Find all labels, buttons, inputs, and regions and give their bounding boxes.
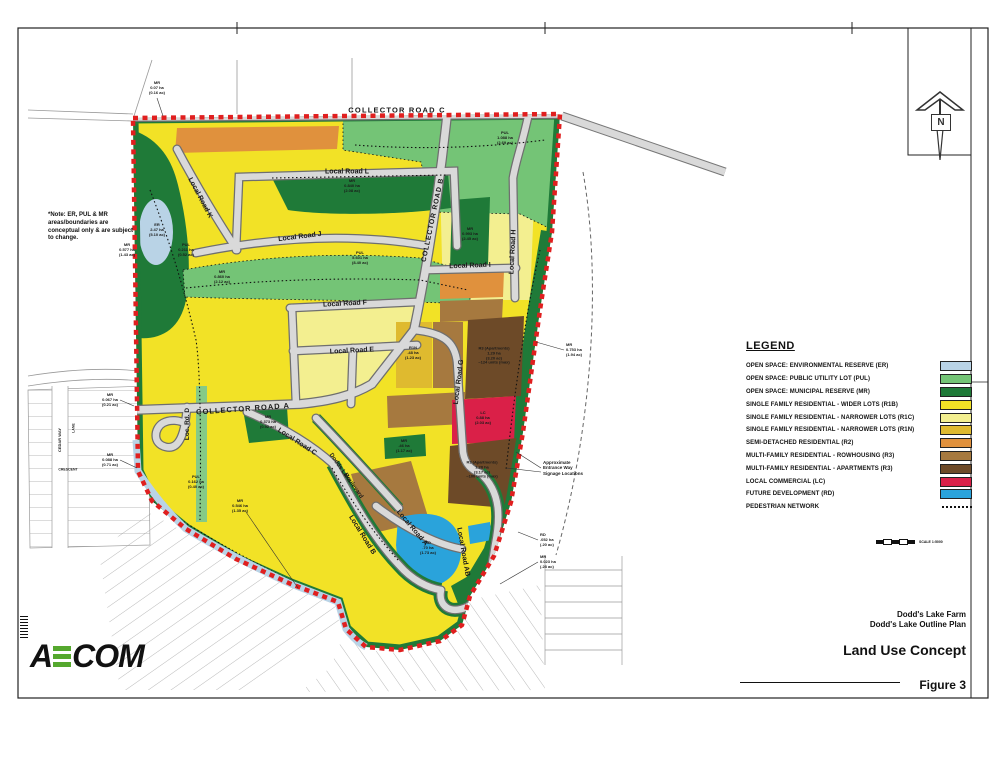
figure-number: Figure 3 (766, 678, 966, 692)
legend-item: SINGLE FAMILY RESIDENTIAL - WIDER LOTS (… (746, 398, 972, 411)
legend-item: SEMI-DETACHED RESIDENTIAL (R2) (746, 437, 972, 450)
legend-dotted-line (942, 506, 972, 508)
project-name-line1: Dodd's Lake Farm (700, 610, 966, 620)
legend-item-label: PEDESTRIAN NETWORK (746, 504, 819, 510)
plot-stamp (20, 616, 28, 640)
aecom-logo: A COM (30, 638, 144, 675)
legend-item: MULTI-FAMILY RESIDENTIAL - ROWHOUSING (R… (746, 450, 972, 463)
legend-item: PEDESTRIAN NETWORK (746, 501, 972, 514)
legend-item-label: SINGLE FAMILY RESIDENTIAL - NARROWER LOT… (746, 415, 914, 421)
north-arrow-label: N (931, 114, 951, 131)
map-note: *Note: ER, PUL & MR areas/boundaries are… (48, 212, 140, 243)
legend-color-swatch (940, 477, 972, 487)
title-block: Dodd's Lake Farm Dodd's Lake Outline Pla… (700, 610, 966, 658)
legend-color-swatch (940, 387, 972, 397)
legend-item-label: SINGLE FAMILY RESIDENTIAL - NARROWER LOT… (746, 427, 914, 433)
logo-part1: A (30, 638, 52, 675)
scale-label: SCALE 1:5000 (919, 540, 943, 544)
legend-item: OPEN SPACE: MUNICIPAL RESERVE (MR) (746, 386, 972, 399)
legend-item-label: SINGLE FAMILY RESIDENTIAL - WIDER LOTS (… (746, 402, 898, 408)
scale-bar: SCALE 1:5000 (876, 539, 943, 545)
legend-item-label: OPEN SPACE: ENVIRONMENTAL RESERVE (ER) (746, 363, 888, 369)
logo-part2: COM (72, 638, 144, 675)
legend-item-label: MULTI-FAMILY RESIDENTIAL - APARTMENTS (R… (746, 466, 893, 472)
legend: LEGEND OPEN SPACE: ENVIRONMENTAL RESERVE… (746, 340, 972, 514)
legend-item: OPEN SPACE: PUBLIC UTILITY LOT (PUL) (746, 373, 972, 386)
legend-item-label: LOCAL COMMERCIAL (LC) (746, 479, 825, 485)
legend-item-label: MULTI-FAMILY RESIDENTIAL - ROWHOUSING (R… (746, 453, 894, 459)
legend-item-label: FUTURE DEVELOPMENT (RD) (746, 491, 834, 497)
legend-item: SINGLE FAMILY RESIDENTIAL - NARROWER LOT… (746, 411, 972, 424)
legend-color-swatch (940, 361, 972, 371)
legend-color-swatch (940, 438, 972, 448)
legend-item: OPEN SPACE: ENVIRONMENTAL RESERVE (ER) (746, 360, 972, 373)
legend-color-swatch (940, 489, 972, 499)
logo-e-bars-icon (53, 646, 71, 667)
legend-item-label: SEMI-DETACHED RESIDENTIAL (R2) (746, 440, 853, 446)
legend-color-swatch (940, 451, 972, 461)
project-name-line2: Dodd's Lake Outline Plan (700, 620, 966, 630)
plan-sheet: N COLLECTOR ROAD CCOLLECTOR ROAD BCOLLEC… (0, 0, 993, 768)
legend-item-label: OPEN SPACE: MUNICIPAL RESERVE (MR) (746, 389, 870, 395)
legend-item: LOCAL COMMERCIAL (LC) (746, 475, 972, 488)
legend-items: OPEN SPACE: ENVIRONMENTAL RESERVE (ER)OP… (746, 360, 972, 514)
legend-item-label: OPEN SPACE: PUBLIC UTILITY LOT (PUL) (746, 376, 870, 382)
legend-color-swatch (940, 400, 972, 410)
legend-color-swatch (940, 413, 972, 423)
legend-item: SINGLE FAMILY RESIDENTIAL - NARROWER LOT… (746, 424, 972, 437)
legend-color-swatch (940, 374, 972, 384)
legend-item: FUTURE DEVELOPMENT (RD) (746, 488, 972, 501)
legend-item: MULTI-FAMILY RESIDENTIAL - APARTMENTS (R… (746, 462, 972, 475)
drawing-title: Land Use Concept (700, 642, 966, 658)
legend-heading: LEGEND (746, 340, 972, 352)
legend-color-swatch (940, 425, 972, 435)
legend-color-swatch (940, 464, 972, 474)
